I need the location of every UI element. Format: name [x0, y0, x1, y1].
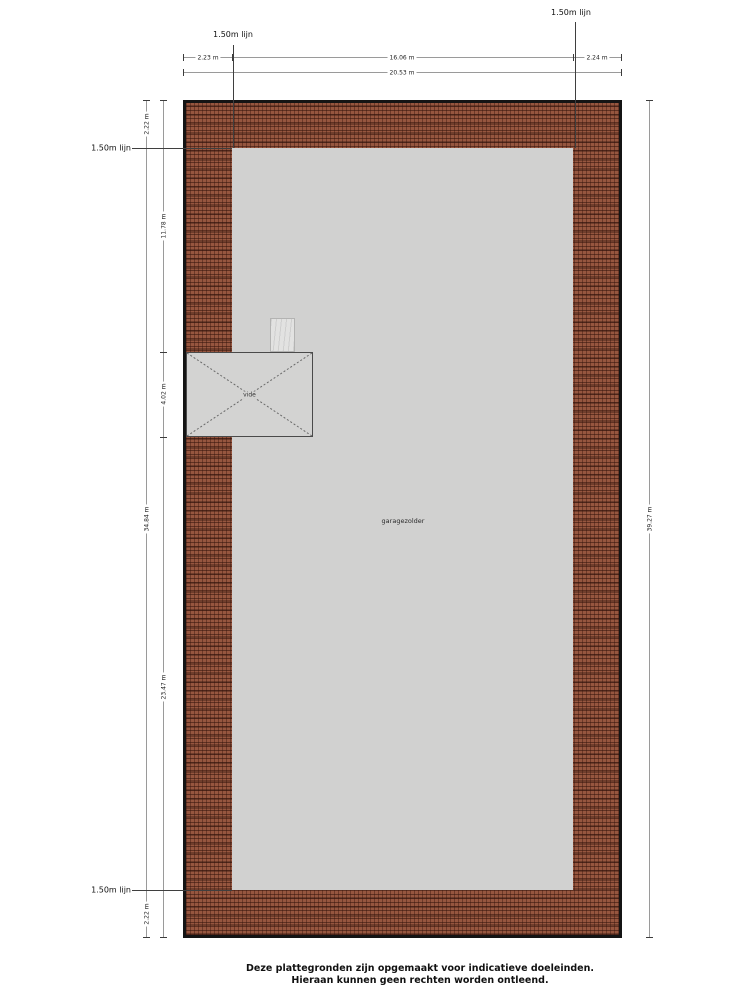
level-line-label-mid-left: 1.50m lijn	[91, 144, 131, 153]
disclaimer: Deze plattegronden zijn opgemaakt voor i…	[90, 963, 750, 986]
dim-left-inner-bottom: 23.47 m	[161, 673, 168, 702]
vide-label: vide	[242, 391, 257, 398]
dim-top-total: 20.53 m	[388, 70, 417, 77]
level-line-vertical-left	[233, 45, 234, 148]
level-line-vertical-right	[575, 22, 576, 148]
dim-left-outer-bottom: 2.22 m	[144, 901, 151, 926]
dim-top-right: 2.24 m	[584, 55, 609, 62]
level-line-label-bottom-left: 1.50m lijn	[91, 886, 131, 895]
level-line-label-top-left: 1.50m lijn	[213, 30, 253, 39]
dim-right-total: 39.27 m	[647, 505, 654, 534]
level-line-label-top-right: 1.50m lijn	[551, 8, 591, 17]
room-label: garagezolder	[382, 517, 425, 525]
dim-left-inner-top: 11.78 m	[161, 212, 168, 241]
dim-top-left: 2.23 m	[195, 55, 220, 62]
level-line-horizontal-bottom	[132, 890, 232, 891]
dim-left-inner-vide: 4.02 m	[161, 381, 168, 406]
floorplan-canvas: vide garagezolder 2.23 m 16.06 m 2.24 m …	[0, 0, 750, 1000]
disclaimer-line-1: Deze plattegronden zijn opgemaakt voor i…	[90, 963, 750, 975]
dim-top-middle: 16.06 m	[388, 55, 417, 62]
level-line-horizontal-top	[132, 148, 232, 149]
disclaimer-line-2: Hieraan kunnen geen rechten worden ontle…	[90, 975, 750, 987]
dim-left-outer-middle: 34.84 m	[144, 505, 151, 534]
stairs-icon	[270, 318, 295, 352]
vide-area: vide	[186, 352, 313, 437]
dim-left-outer-top: 2.22 m	[144, 111, 151, 136]
